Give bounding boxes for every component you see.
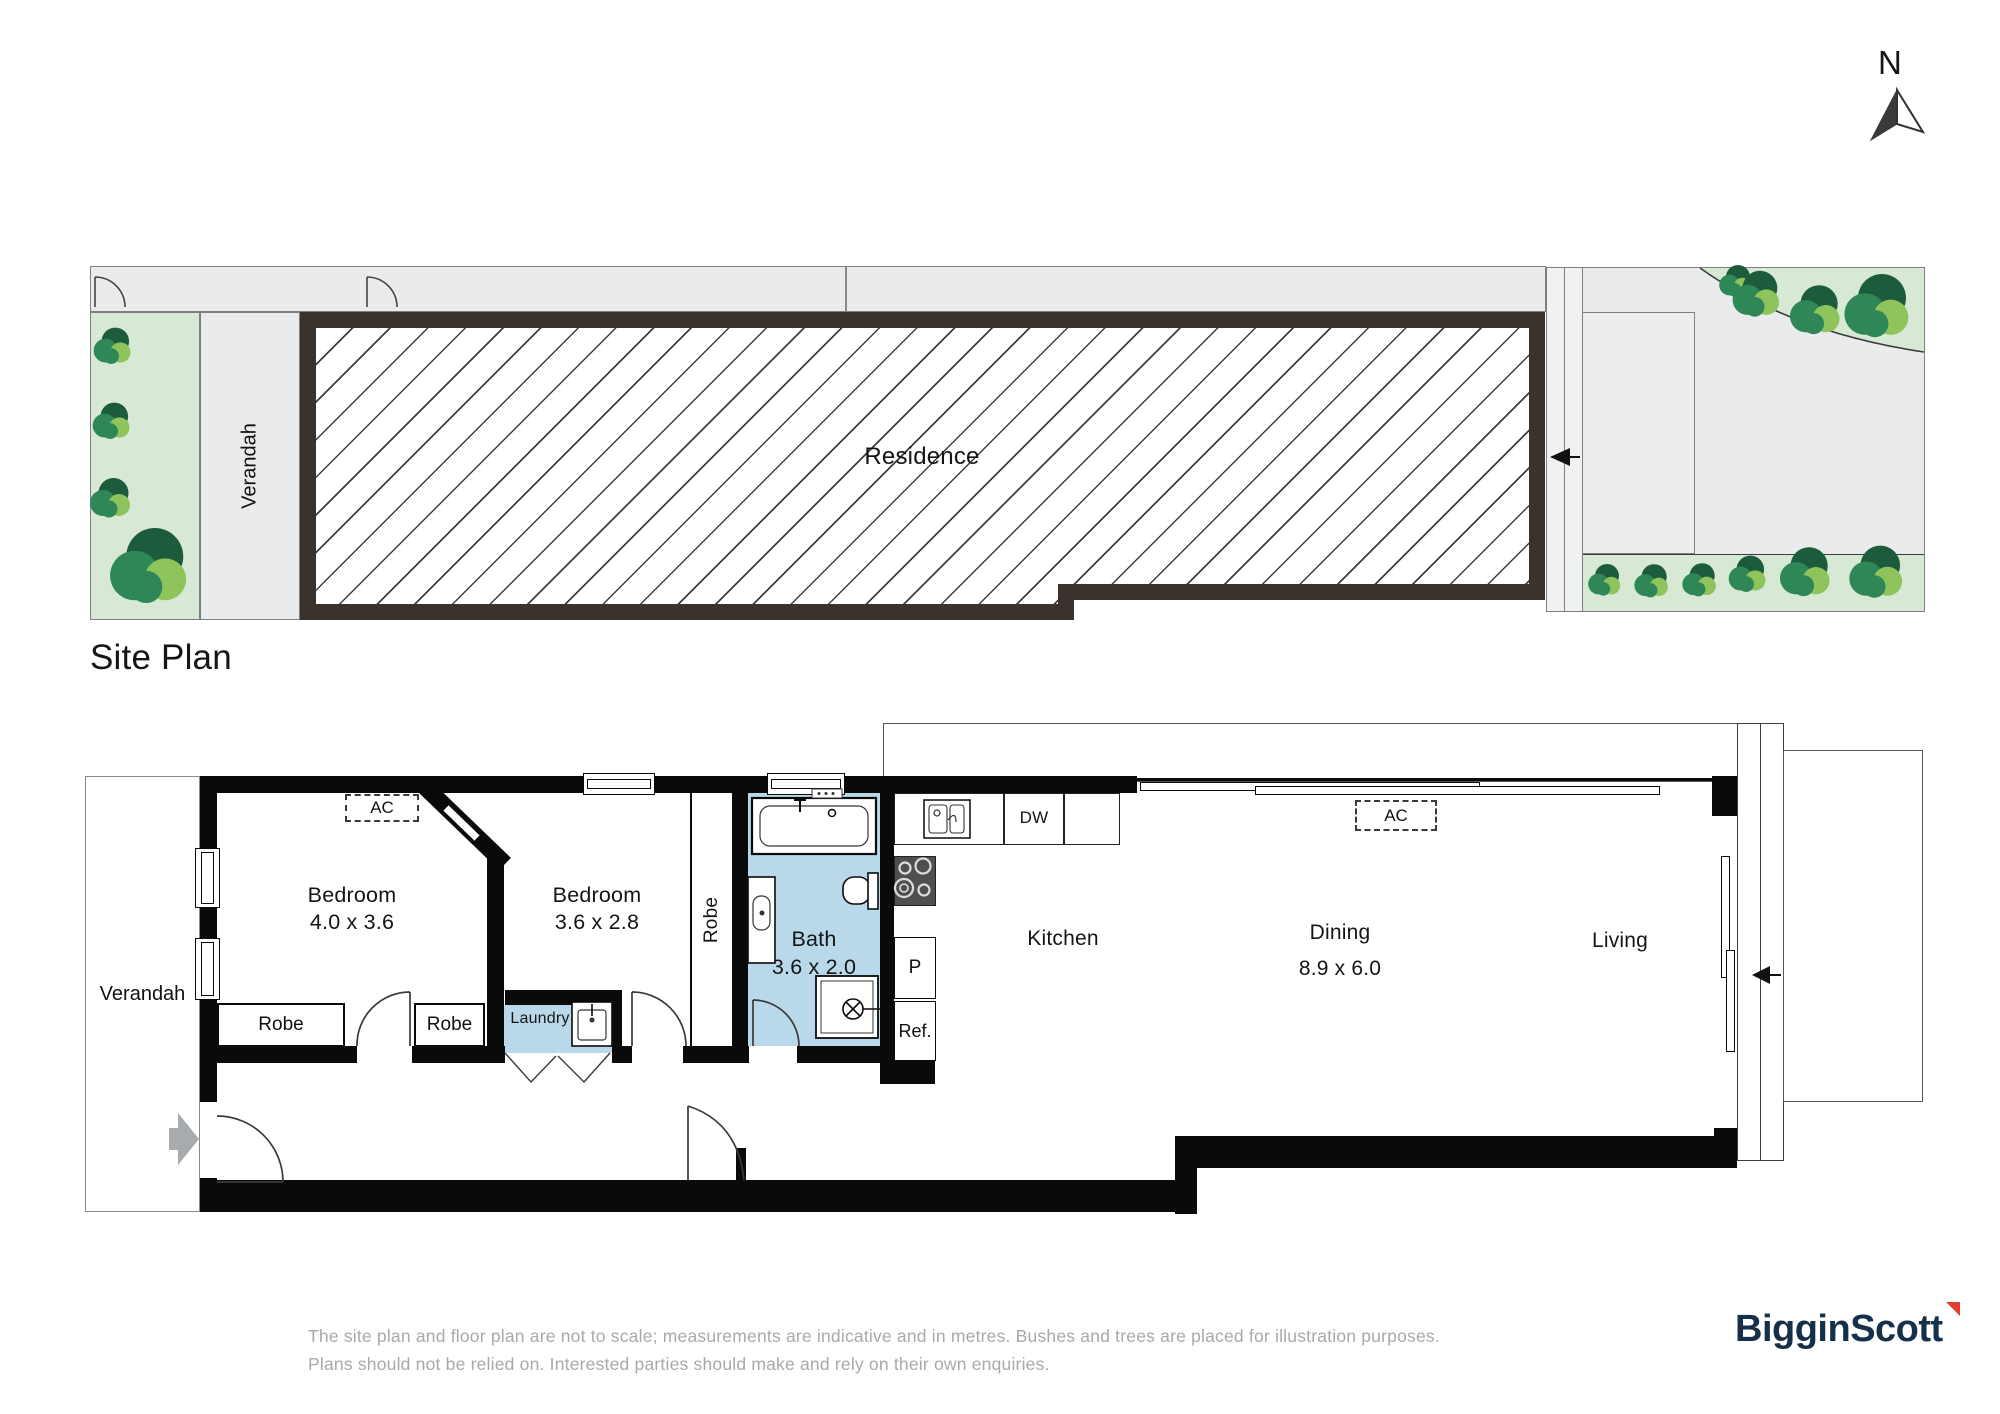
street-strip-divider — [845, 267, 847, 311]
wall — [612, 990, 622, 1063]
pantry-label: P — [909, 957, 922, 979]
bedroom1-dims: 4.0 x 3.6 — [310, 911, 394, 934]
wall — [200, 906, 217, 940]
bifold-door-icon — [505, 1053, 610, 1082]
wall — [1058, 584, 1545, 600]
wall — [797, 1046, 894, 1063]
wall-door-stub — [736, 1148, 746, 1182]
bedroom2-dims: 3.6 x 2.8 — [555, 911, 639, 934]
wall — [300, 312, 1545, 328]
kitchen-counter — [894, 793, 1120, 845]
disclaimer-line1: The site plan and floor plan are not to … — [308, 1326, 1440, 1347]
ac-label: AC — [370, 798, 394, 818]
wall — [300, 312, 316, 620]
robe-bed1-left: Robe — [217, 1003, 345, 1047]
compass-label: N — [1878, 46, 1902, 81]
window-icon — [583, 773, 655, 795]
counter-divider — [1003, 793, 1005, 845]
window-icon — [767, 773, 845, 795]
brand-logo: BigginScott — [1735, 1308, 1943, 1351]
wall — [1175, 1136, 1197, 1214]
counter-divider — [1063, 793, 1065, 845]
garden-left — [90, 312, 200, 620]
robe-bed1-right: Robe — [414, 1003, 485, 1047]
garden-rear-strip — [1583, 554, 1924, 611]
wall — [1175, 1136, 1737, 1168]
fp-verandah-label: Verandah — [100, 983, 186, 1006]
wall — [200, 776, 583, 793]
plan-sheet: Verandah Residence Site Plan Verandah — [0, 0, 2000, 1414]
wall — [683, 1046, 749, 1063]
wall — [412, 1046, 505, 1063]
cooktop-icon — [894, 856, 936, 906]
side-path-lane — [1760, 723, 1784, 1161]
wall — [1712, 776, 1737, 816]
disclaimer-line2: Plans should not be relied on. Intereste… — [308, 1354, 1050, 1375]
laundry-label: Laundry — [510, 1011, 569, 1028]
wall — [845, 776, 1137, 793]
window-icon — [195, 938, 220, 1000]
wall — [732, 793, 748, 1046]
wall — [200, 776, 217, 850]
robe-label: Robe — [258, 1014, 303, 1036]
wall — [487, 852, 504, 1062]
site-plan-title: Site Plan — [90, 640, 232, 677]
wall — [655, 776, 767, 793]
room-bath-fill — [748, 793, 880, 1046]
wall — [1714, 1128, 1737, 1168]
window-run-icon — [1255, 786, 1660, 795]
wall-thin-window-run — [1137, 778, 1714, 781]
wall — [300, 604, 1074, 620]
bath-name: Bath — [791, 928, 836, 951]
bedroom2-name: Bedroom — [553, 884, 642, 907]
fridge-label: Ref. — [898, 1021, 931, 1042]
robe-label: Robe — [427, 1014, 472, 1036]
wall-robe-line — [690, 793, 692, 1046]
bedroom1-name: Bedroom — [308, 884, 397, 907]
wall — [505, 990, 620, 1005]
rear-structure-outline — [1582, 312, 1695, 554]
ac-unit-bedroom: AC — [345, 794, 419, 822]
brand-logo-mark-icon — [1946, 1302, 1960, 1316]
fp-verandah: Verandah — [85, 776, 200, 1212]
dishwasher-label: DW — [1020, 809, 1049, 827]
pantry-cell: P — [894, 937, 936, 999]
sliding-door-icon — [1726, 950, 1735, 1052]
street-strip — [90, 266, 1546, 312]
wall — [1529, 312, 1545, 600]
fridge-cell: Ref. — [894, 1001, 936, 1061]
dining-name: Dining — [1310, 922, 1371, 944]
bath-dims: 3.6 x 2.0 — [772, 956, 856, 979]
dining-dims: 8.9 x 6.0 — [1299, 958, 1381, 980]
rear-structure-outline-top — [883, 723, 1738, 782]
window-icon — [195, 848, 220, 908]
side-path-lane — [1546, 267, 1565, 612]
wall — [200, 1046, 357, 1063]
living-label: Living — [1592, 930, 1648, 952]
kitchen-label: Kitchen — [1027, 928, 1098, 950]
residence-label: Residence — [864, 444, 979, 469]
site-verandah-strip: Verandah — [200, 312, 300, 620]
side-path-lane — [1737, 723, 1761, 1161]
ac-unit-living: AC — [1355, 800, 1437, 831]
wall — [880, 793, 894, 1046]
side-path-lane — [1564, 267, 1583, 612]
robe-hall-label: Robe — [702, 897, 722, 943]
ac-label: AC — [1384, 806, 1408, 826]
compass-needle-icon — [1871, 90, 1923, 140]
rear-yard-outline — [1783, 750, 1923, 1102]
site-verandah-label: Verandah — [239, 423, 262, 509]
wall — [200, 1180, 1197, 1212]
